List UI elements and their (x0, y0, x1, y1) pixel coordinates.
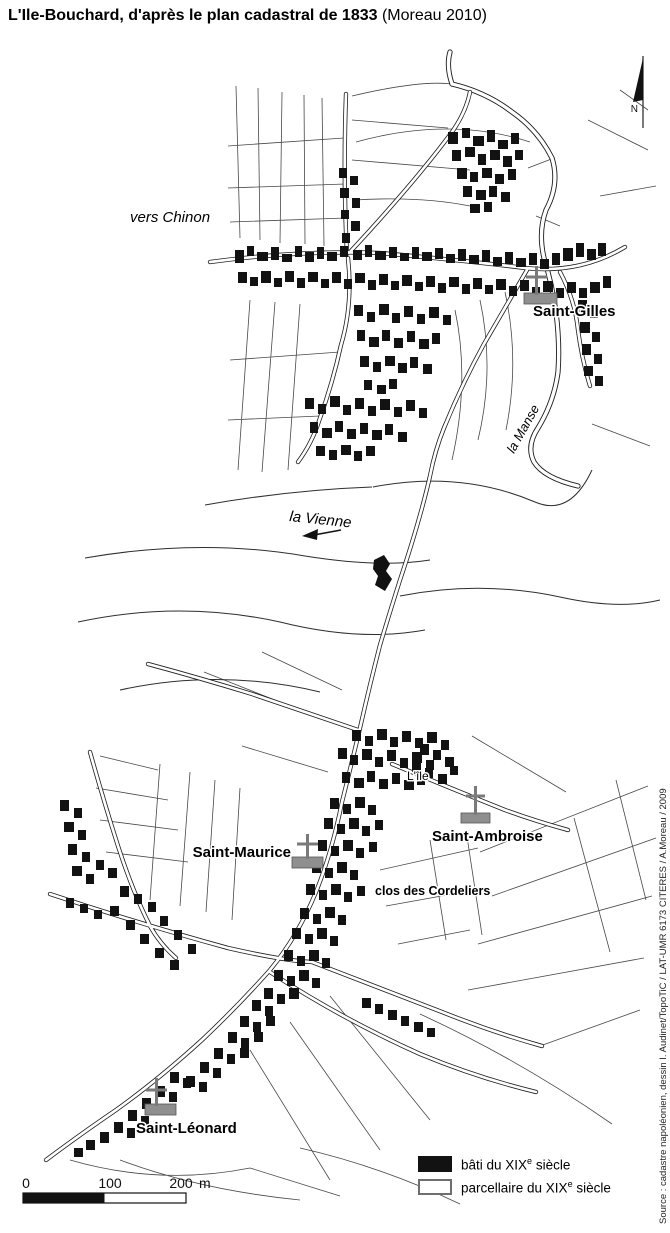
north-arrow: N (631, 56, 643, 128)
legend-swatch-parcel (418, 1179, 452, 1195)
flow-arrow-icon (302, 529, 341, 540)
source-note: Source : cadastre napoléonien, dessin I.… (658, 764, 669, 1224)
scale-unit: m (199, 1175, 211, 1191)
church-rect (145, 1104, 176, 1115)
legend-swatch-built (418, 1156, 452, 1172)
cadastral-map: vers Chinon la Manse la Vienne L'île Sai… (0, 0, 670, 1233)
label-saint-leonard: Saint-Léonard (136, 1120, 237, 1137)
scale-bar: 0 100 200 m (22, 1175, 211, 1203)
scale-tick-200: 200 (169, 1175, 193, 1191)
scale-bar-filled-half (24, 1194, 105, 1203)
legend: bâti du XIXe siècle parcellaire du XIXe … (418, 1156, 611, 1201)
label-la-vienne: la Vienne (289, 508, 353, 531)
buildings-lower-mid (264, 907, 346, 1004)
buildings-upper-northeast (448, 128, 523, 213)
scale-tick-0: 0 (22, 1175, 30, 1191)
buildings-upper-middle (354, 304, 451, 394)
river-island (373, 555, 392, 591)
label-l-ile: L'île (407, 769, 429, 783)
figure-page: L'Ile-Bouchard, d'après le plan cadastra… (0, 0, 670, 1233)
north-arrow-blade (633, 58, 643, 102)
legend-item-parcel: parcellaire du XIXe siècle (418, 1179, 611, 1196)
label-saint-gilles: Saint-Gilles (533, 303, 616, 320)
legend-text: siècle (573, 1180, 611, 1195)
buildings-upper-lower (305, 396, 427, 461)
legend-text: bâti du XIX (461, 1158, 527, 1173)
label-saint-ambroise: Saint-Ambroise (432, 828, 543, 845)
river-bank-lines (78, 470, 660, 692)
cross-icon (297, 834, 318, 859)
legend-item-built: bâti du XIXe siècle (418, 1156, 611, 1173)
label-vers-chinon: vers Chinon (130, 209, 210, 226)
label-clos-des-cordeliers: clos des Cordeliers (375, 884, 490, 898)
label-saint-maurice: Saint-Maurice (193, 844, 291, 861)
buildings-upper-vertical-street (339, 168, 360, 243)
north-label: N (631, 104, 638, 115)
legend-text: siècle (532, 1158, 570, 1173)
legend-label-parcel: parcellaire du XIXe siècle (461, 1179, 611, 1196)
legend-label-built: bâti du XIXe siècle (461, 1156, 570, 1173)
scale-tick-100: 100 (98, 1175, 122, 1191)
legend-text: parcellaire du XIX (461, 1180, 568, 1195)
